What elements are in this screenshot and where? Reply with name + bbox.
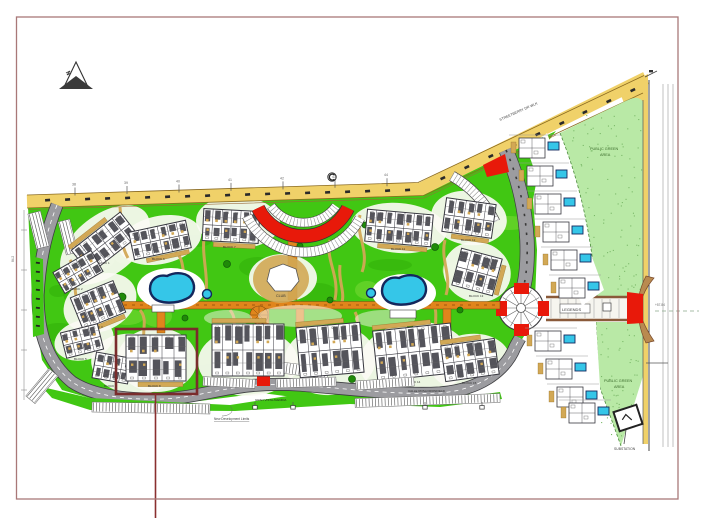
- svg-text:BLOCK 11: BLOCK 11: [391, 247, 405, 251]
- svg-text:GRAN VISTA AVENIDA: GRAN VISTA AVENIDA: [255, 398, 286, 402]
- svg-text:BLOCK 12: BLOCK 12: [461, 238, 476, 242]
- svg-text:BLOCK 6: BLOCK 6: [152, 257, 165, 261]
- svg-text:BLOCK 7: BLOCK 7: [223, 245, 236, 249]
- svg-text:40: 40: [176, 179, 180, 183]
- svg-text:SUBSTATION: SUBSTATION: [614, 447, 636, 451]
- svg-text:38: 38: [72, 183, 76, 187]
- svg-text:39: 39: [124, 181, 128, 185]
- svg-text:PUBLIC GREEN: PUBLIC GREEN: [604, 379, 633, 383]
- svg-text:BLOCK 2: BLOCK 2: [70, 287, 83, 291]
- svg-text:+57.84: +57.84: [655, 303, 665, 307]
- svg-text:BLOCK 13: BLOCK 13: [469, 294, 484, 298]
- svg-text:BLOCK 8: BLOCK 8: [148, 384, 161, 388]
- svg-text:CLUB: CLUB: [276, 294, 286, 298]
- svg-text:New Development Limits: New Development Limits: [214, 417, 250, 421]
- svg-text:BLOCK 15: BLOCK 15: [462, 381, 477, 385]
- svg-text:BLOCK 5: BLOCK 5: [74, 357, 87, 361]
- svg-text:44: 44: [384, 173, 388, 177]
- svg-text:84.2: 84.2: [11, 256, 15, 262]
- svg-text:LEGENDS: LEGENDS: [562, 307, 581, 312]
- svg-text:PUBLIC GREEN: PUBLIC GREEN: [590, 147, 619, 151]
- svg-text:AREA: AREA: [600, 153, 611, 157]
- svg-text:CALLE ROSA DRONFIELD: CALLE ROSA DRONFIELD: [408, 389, 446, 393]
- svg-text:42: 42: [280, 176, 284, 180]
- svg-text:AREA: AREA: [614, 385, 625, 389]
- svg-text:41: 41: [228, 178, 232, 182]
